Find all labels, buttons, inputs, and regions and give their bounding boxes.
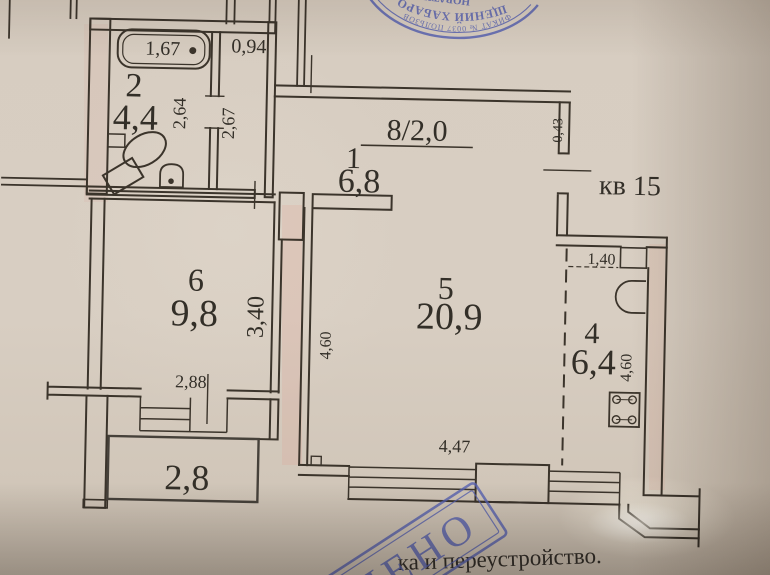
wall [275, 85, 570, 102]
room6-area: 9,8 [170, 292, 218, 335]
bathtub-drain [189, 47, 196, 54]
wall [47, 383, 278, 404]
stamp-center-text: НОВАТИ [423, 0, 471, 7]
wall [271, 202, 283, 392]
room2-area: 4,4 [112, 97, 158, 138]
dim-288: 2,88 [175, 371, 207, 392]
dim-140: 1,40 [587, 251, 615, 269]
dim-460-kitchen: 4,60 [618, 354, 636, 382]
wall [88, 199, 105, 389]
room5-area: 20,9 [416, 295, 483, 338]
basin-drain [168, 178, 174, 184]
exterior-wall [628, 505, 699, 529]
dim-264: 2,64 [169, 97, 190, 129]
balcony-area: 2,8 [164, 457, 210, 498]
wall-notch [311, 456, 321, 465]
dim-bathtub: 1,67 [145, 38, 180, 61]
exterior-wall [619, 505, 700, 539]
wall [299, 465, 349, 476]
toilet-tank [103, 158, 143, 194]
dim-340: 3,40 [243, 296, 270, 339]
vent-shaft [620, 248, 646, 269]
stove-burners [612, 396, 636, 424]
tick [207, 374, 208, 424]
closet-label: 8/2,0 [386, 114, 448, 148]
room4-area: 6,4 [570, 342, 616, 383]
neighbor-wall [2, 178, 87, 187]
wall [265, 22, 277, 197]
dim-closet-width: 0,94 [231, 35, 266, 58]
kitchen-sink [615, 281, 646, 314]
photo-tint-patches [84, 24, 665, 490]
entrance-tick [543, 170, 591, 171]
oval-stamp: ЩЕНИЙ ХАБАРО ФИКАТ № 0037 ПОЛЬЗОВ НОВАТИ [364, 0, 539, 44]
balcony-window [140, 397, 228, 433]
wall [84, 395, 107, 507]
floor-plan-photo: 1,67 0,94 2 4,4 2,64 2,67 8/2,0 1 6,8 0,… [0, 0, 770, 575]
wall [259, 399, 279, 439]
living-window [348, 467, 476, 502]
tick [254, 181, 255, 209]
kitchen-window [548, 471, 620, 504]
exterior-wall [348, 499, 619, 505]
dashed-partition [562, 248, 567, 465]
apartment-number: кв 15 [599, 170, 661, 202]
tick [311, 55, 312, 93]
plan-labels: 1,67 0,94 2 4,4 2,64 2,67 8/2,0 1 6,8 0,… [105, 33, 664, 507]
dim-460-living: 4,60 [317, 331, 335, 359]
window-pier [475, 464, 549, 504]
dim-043: 0,43 [551, 118, 567, 143]
dim-267: 2,67 [218, 107, 239, 139]
dim-447: 4,47 [439, 436, 471, 457]
room1-area: 6,8 [337, 163, 380, 201]
plan-svg: 1,67 0,94 2 4,4 2,64 2,67 8/2,0 1 6,8 0,… [0, 0, 770, 575]
